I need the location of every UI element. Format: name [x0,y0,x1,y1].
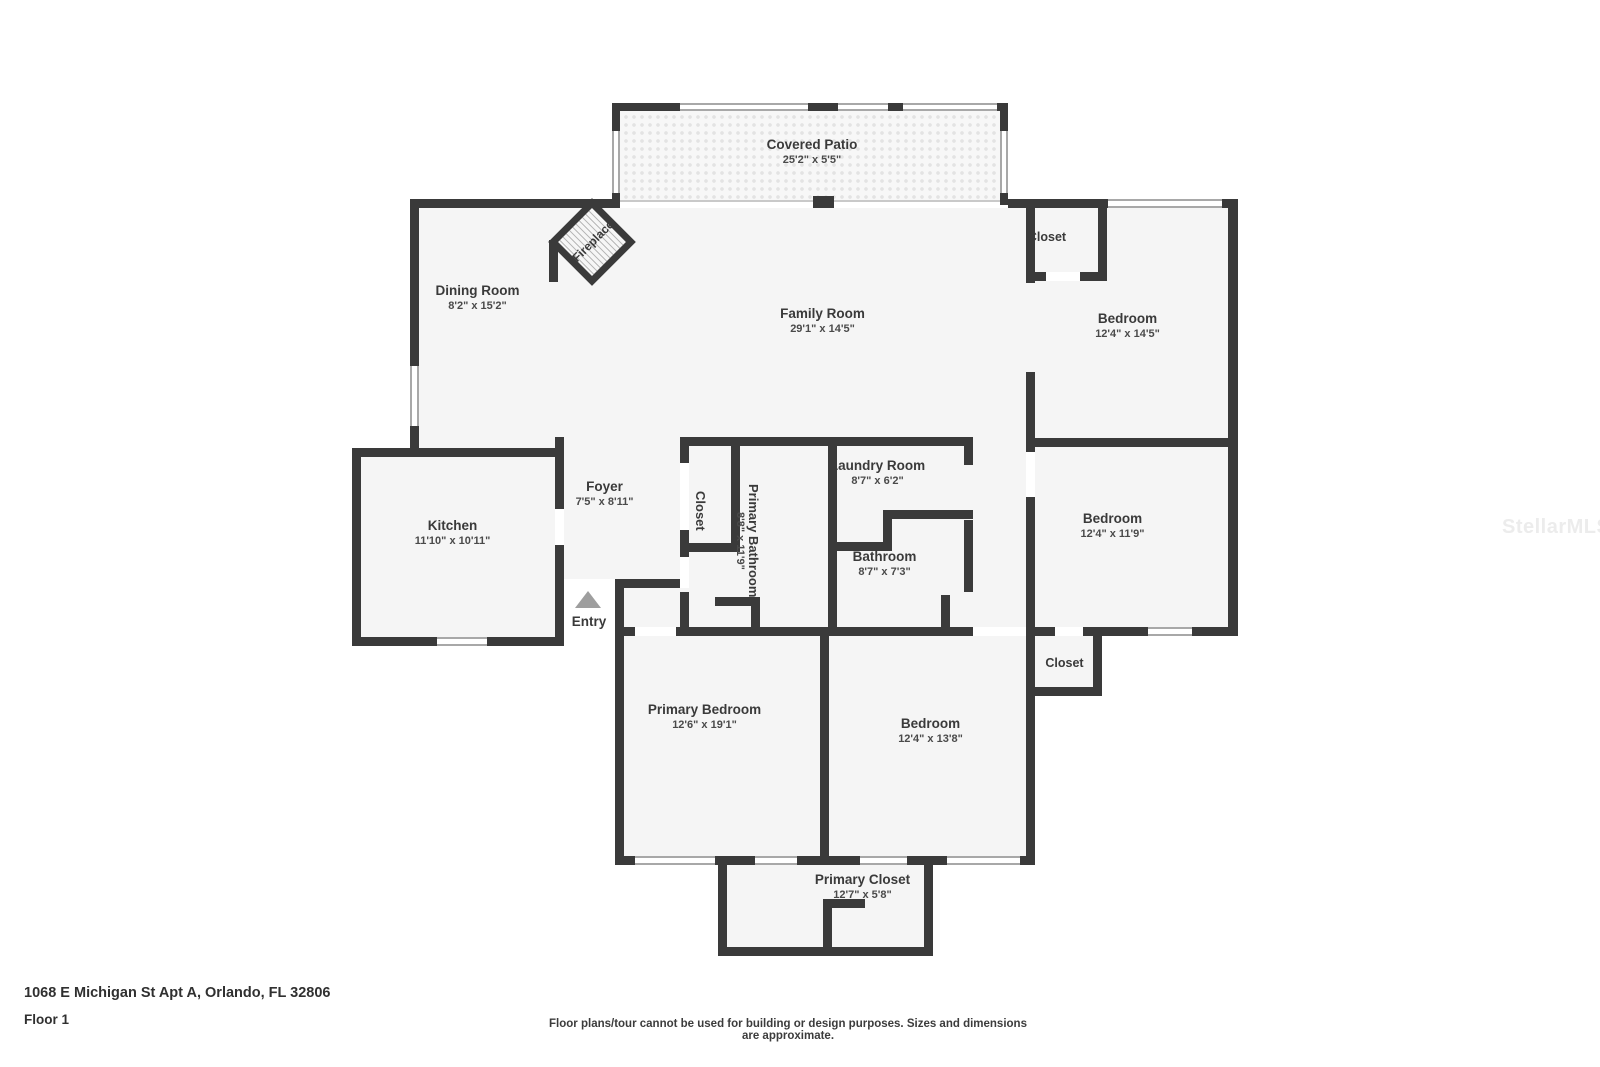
disclaimer-text: Floor plans/tour cannot be used for buil… [540,1018,1036,1042]
room-label-foyer: Foyer 7'5" x 8'11" [542,479,667,508]
room-label-bedroom-top-right: Bedroom 12'4" x 14'5" [1045,311,1210,340]
wall [1083,627,1148,636]
wall [1026,497,1035,865]
wall [1008,199,1108,208]
floor-foyer [564,438,680,579]
wall [823,908,832,956]
window [410,366,419,426]
wall [1098,199,1107,273]
wall [680,437,689,463]
wall [1192,627,1238,636]
wall [892,510,973,519]
wall [680,437,973,446]
window [860,856,907,865]
room-label-bedroom-mid-right: Bedroom 12'4" x 11'9" [1030,511,1195,540]
window [1148,627,1192,636]
wall [555,545,564,646]
room-label-family-room: Family Room 29'1" x 14'5" [740,306,905,335]
window [437,637,487,646]
window [635,856,715,865]
door-opening [564,579,615,588]
wall [1026,438,1238,447]
room-label-entry: Entry [549,614,629,629]
wall [1228,199,1238,636]
window [903,103,997,111]
window [1108,199,1222,208]
watermark: StellarMLS [1502,516,1600,539]
door-opening [1055,627,1083,636]
floor-right-bedrooms [1035,208,1228,628]
wall [352,448,361,646]
entry-arrow-icon [575,591,601,608]
floor-plan-canvas: Fireplace Covered Patio 25'2" x 5'5" Din… [0,0,1600,1067]
floor-label: Floor 1 [24,1012,69,1027]
wall [964,437,973,465]
address-text: 1068 E Michigan St Apt A, Orlando, FL 32… [24,985,330,1001]
wall [1026,687,1102,696]
room-label-primary-closet: Primary Closet 12'7" x 5'8" [814,872,911,901]
room-label-dining-room: Dining Room 8'2" x 15'2" [395,283,560,312]
door-opening [635,627,676,636]
wall [797,856,860,865]
room-label-kitchen: Kitchen 11'10" x 10'11" [370,518,535,547]
wall [820,627,829,865]
door-opening [1026,452,1035,497]
room-label-laundry-room: Laundry Room 8'7" x 6'2" [795,458,960,487]
wall [718,856,727,956]
room-label-bedroom-bottom: Bedroom 12'4" x 13'8" [848,716,1013,745]
window [680,103,808,111]
room-label-primary-bathroom: Primary Bathroom 8'8" x 11'9" [734,447,761,635]
wall [1026,627,1055,636]
wall [615,856,635,865]
door-opening [973,627,1026,636]
room-label-covered-patio: Covered Patio 25'2" x 5'5" [712,137,912,166]
window [755,856,797,865]
wall [883,510,892,551]
wall [1020,856,1035,865]
door-opening [1046,272,1080,281]
room-label-bathroom: Bathroom 8'7" x 7'3" [802,549,967,578]
window [612,131,620,193]
window [947,856,1020,865]
wall [924,856,933,956]
room-label-primary-bedroom: Primary Bedroom 12'6" x 19'1" [602,702,807,731]
wall [615,579,680,588]
wall [813,196,834,208]
room-label-closet-mid-right: Closet [1022,656,1107,670]
door-opening [555,509,564,545]
wall [352,448,564,457]
window [838,103,888,111]
room-label-closet-top-right: Closet [1002,230,1092,244]
room-label-hall-closet: Closet [693,456,708,566]
window [1000,131,1008,193]
fireplace: Fireplace [545,198,641,290]
